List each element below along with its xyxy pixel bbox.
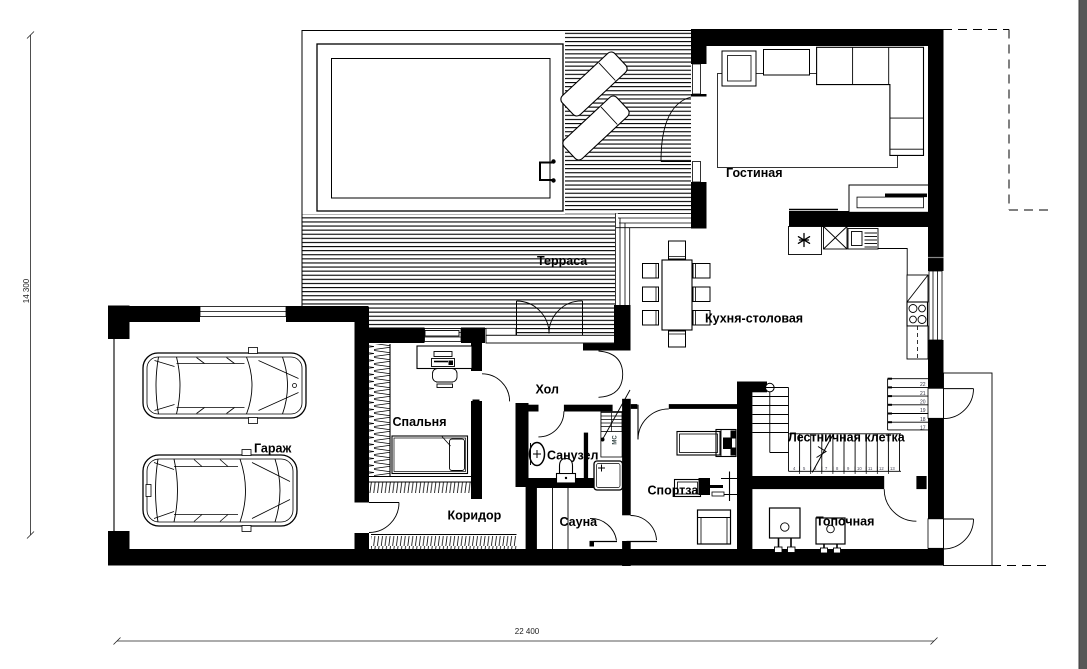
svg-text:Спортзал: Спортзал — [648, 484, 707, 498]
svg-text:МС: МС — [613, 435, 619, 445]
svg-text:Коридор: Коридор — [448, 509, 502, 523]
svg-text:22 400: 22 400 — [515, 627, 540, 636]
svg-text:21: 21 — [920, 391, 926, 397]
svg-text:19: 19 — [920, 408, 926, 414]
svg-text:12: 12 — [879, 466, 884, 471]
svg-text:Санузел: Санузел — [547, 449, 598, 463]
svg-text:Лестничная клетка: Лестничная клетка — [788, 431, 906, 445]
svg-text:Гостиная: Гостиная — [726, 166, 783, 180]
svg-text:Спальня: Спальня — [393, 415, 447, 429]
svg-text:Сауна: Сауна — [560, 515, 599, 529]
svg-text:Кухня-столовая: Кухня-столовая — [705, 312, 803, 326]
svg-text:Терраса: Терраса — [537, 254, 588, 268]
svg-text:22: 22 — [920, 382, 926, 388]
svg-text:18: 18 — [920, 417, 926, 423]
svg-text:20: 20 — [920, 400, 926, 406]
svg-text:11: 11 — [868, 466, 873, 471]
svg-text:13: 13 — [890, 466, 895, 471]
svg-text:Хол: Хол — [536, 383, 559, 397]
svg-text:Гараж: Гараж — [254, 442, 291, 456]
svg-text:17: 17 — [920, 426, 926, 432]
svg-text:10: 10 — [857, 466, 862, 471]
svg-text:14 300: 14 300 — [22, 278, 31, 303]
svg-text:Топочная: Топочная — [816, 515, 874, 529]
